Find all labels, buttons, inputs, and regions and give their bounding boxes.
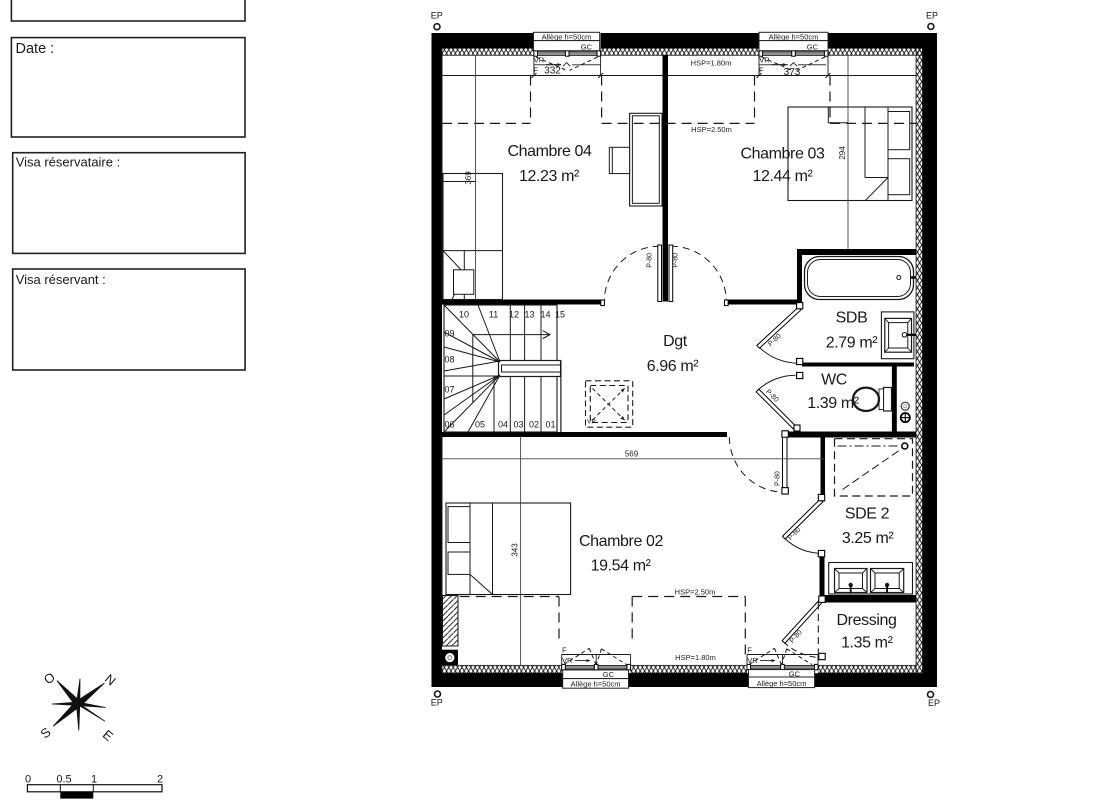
svg-text:Visa réservataire :: Visa réservataire : xyxy=(16,154,121,169)
svg-text:E: E xyxy=(100,727,117,744)
svg-text:2.79 m²: 2.79 m² xyxy=(826,335,879,352)
svg-text:1: 1 xyxy=(91,774,97,786)
svg-text:04: 04 xyxy=(498,420,508,430)
svg-text:01: 01 xyxy=(545,420,555,430)
svg-text:Chambre 02: Chambre 02 xyxy=(579,533,664,550)
svg-text:1.35 m²: 1.35 m² xyxy=(841,635,894,652)
svg-text:Dgt: Dgt xyxy=(663,333,688,350)
svg-text:EP: EP xyxy=(431,11,443,21)
svg-text:0.5: 0.5 xyxy=(56,774,71,786)
svg-text:EP: EP xyxy=(926,11,938,21)
svg-text:08: 08 xyxy=(445,355,455,365)
svg-text:14: 14 xyxy=(540,310,550,320)
svg-text:O: O xyxy=(41,669,58,687)
svg-text:SDE 2: SDE 2 xyxy=(845,505,890,522)
svg-text:6.96 m²: 6.96 m² xyxy=(647,358,700,375)
svg-text:12: 12 xyxy=(509,310,519,320)
svg-text:F: F xyxy=(747,646,752,655)
svg-text:VR: VR xyxy=(747,656,758,665)
svg-text:P-80: P-80 xyxy=(787,526,802,541)
svg-text:VP: VP xyxy=(587,419,596,426)
svg-text:Dressing: Dressing xyxy=(837,612,897,629)
svg-text:HSP=1.80m: HSP=1.80m xyxy=(675,653,716,662)
svg-text:12.23 m²: 12.23 m² xyxy=(519,168,580,185)
svg-text:11: 11 xyxy=(489,310,498,320)
svg-text:Allège h=50cm: Allège h=50cm xyxy=(542,33,592,42)
svg-text:294: 294 xyxy=(838,146,847,160)
svg-text:03: 03 xyxy=(513,420,523,430)
svg-text:Visa réservant :: Visa réservant : xyxy=(16,272,106,287)
svg-text:05: 05 xyxy=(475,420,485,430)
svg-text:Date :: Date : xyxy=(16,41,55,57)
svg-text:EP: EP xyxy=(928,698,940,708)
svg-text:0: 0 xyxy=(25,774,31,786)
svg-text:F: F xyxy=(562,646,567,655)
svg-text:10: 10 xyxy=(459,310,469,320)
svg-text:2: 2 xyxy=(157,774,163,786)
svg-text:GC: GC xyxy=(603,670,615,679)
svg-text:06: 06 xyxy=(445,420,455,430)
svg-text:369: 369 xyxy=(464,171,473,185)
svg-text:Allège h=50cm: Allège h=50cm xyxy=(769,33,819,42)
svg-text:343: 343 xyxy=(511,543,520,557)
svg-text:HSP=1.80m: HSP=1.80m xyxy=(691,59,732,68)
svg-text:373: 373 xyxy=(784,67,801,78)
svg-text:P-80: P-80 xyxy=(775,471,782,486)
svg-text:09: 09 xyxy=(445,329,455,339)
svg-text:Chambre 03: Chambre 03 xyxy=(740,146,825,163)
svg-text:N: N xyxy=(102,671,119,689)
svg-text:15: 15 xyxy=(555,310,565,320)
svg-text:19.54 m²: 19.54 m² xyxy=(591,558,652,575)
svg-text:WC: WC xyxy=(821,371,847,388)
svg-text:EP: EP xyxy=(431,698,443,708)
svg-text:HSP=2.50m: HSP=2.50m xyxy=(675,588,716,597)
svg-text:HSP=2.50m: HSP=2.50m xyxy=(691,125,732,134)
svg-text:S: S xyxy=(37,724,54,741)
svg-text:07: 07 xyxy=(445,385,455,395)
svg-text:P-80: P-80 xyxy=(673,253,680,268)
svg-text:13: 13 xyxy=(524,310,534,320)
svg-text:P-80: P-80 xyxy=(647,253,654,268)
svg-text:GC: GC xyxy=(581,42,593,51)
svg-text:SDB: SDB xyxy=(836,310,868,327)
svg-text:3.25 m²: 3.25 m² xyxy=(842,530,895,547)
svg-text:Allège h=50cm: Allège h=50cm xyxy=(571,680,621,689)
svg-text:02: 02 xyxy=(529,420,539,430)
svg-text:Allège h=50cm: Allège h=50cm xyxy=(757,679,807,688)
svg-text:GC: GC xyxy=(807,42,819,51)
svg-text:VR: VR xyxy=(562,656,573,665)
svg-text:569: 569 xyxy=(625,450,639,459)
svg-text:GC: GC xyxy=(789,669,801,678)
svg-text:1.39 m²: 1.39 m² xyxy=(807,395,860,412)
svg-text:Chambre 04: Chambre 04 xyxy=(507,143,592,160)
svg-text:12.44 m²: 12.44 m² xyxy=(753,168,814,185)
